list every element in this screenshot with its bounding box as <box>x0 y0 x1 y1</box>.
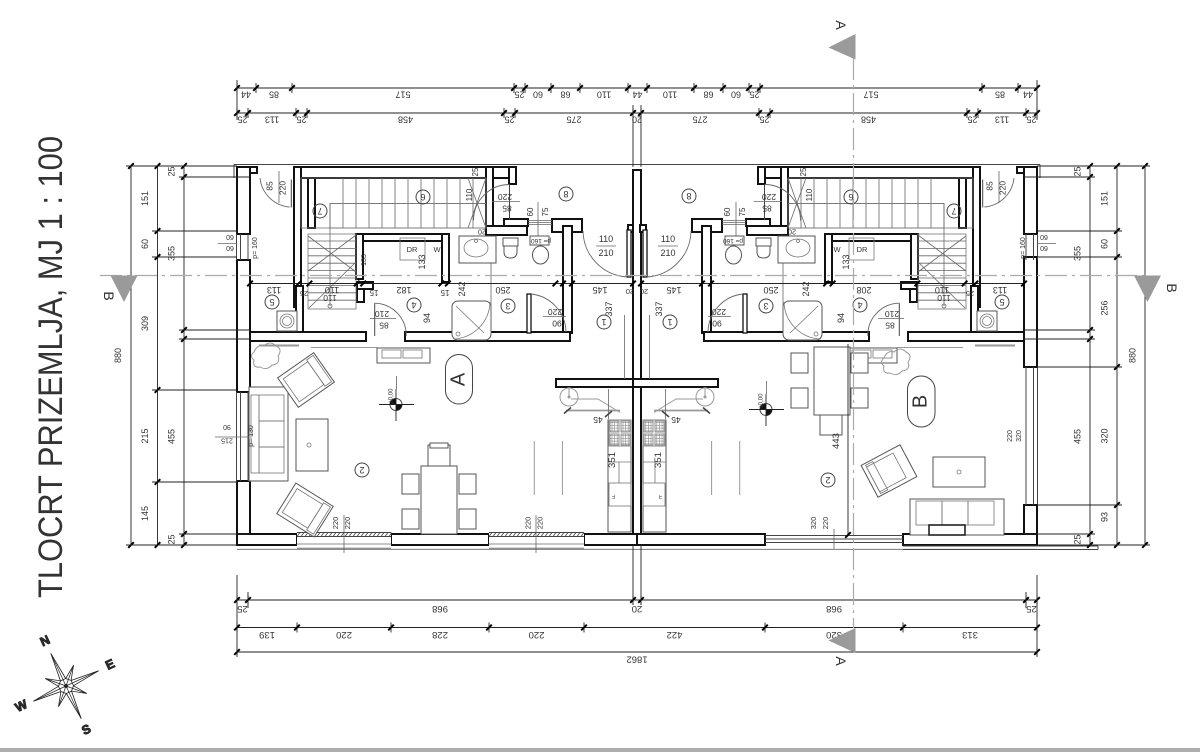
svg-text:90: 90 <box>223 423 231 430</box>
svg-text:220: 220 <box>336 629 352 640</box>
svg-text:210: 210 <box>660 248 675 258</box>
svg-text:25: 25 <box>1026 603 1037 614</box>
svg-text:85: 85 <box>269 90 279 100</box>
svg-text:25: 25 <box>1073 534 1083 544</box>
svg-text:25: 25 <box>799 167 808 176</box>
svg-text:215: 215 <box>140 428 150 443</box>
svg-text:210: 210 <box>885 309 899 319</box>
svg-text:320: 320 <box>809 517 818 530</box>
svg-text:p= 160: p= 160 <box>1020 237 1027 259</box>
svg-text:45: 45 <box>593 415 603 425</box>
svg-text:145: 145 <box>592 285 607 295</box>
svg-text:TLOCRT PRIZEMLJA, MJ 1 : 100: TLOCRT PRIZEMLJA, MJ 1 : 100 <box>32 136 70 598</box>
svg-text:44: 44 <box>632 90 642 100</box>
svg-text:220: 220 <box>331 517 340 530</box>
svg-text:220: 220 <box>1007 430 1014 442</box>
svg-text:320: 320 <box>1016 430 1023 442</box>
svg-text:93: 93 <box>1100 512 1110 522</box>
svg-text:250: 250 <box>763 285 778 295</box>
svg-text:B: B <box>909 395 931 408</box>
svg-text:250: 250 <box>495 285 510 295</box>
svg-text:85: 85 <box>995 90 1005 100</box>
svg-text:68: 68 <box>560 90 570 100</box>
svg-text:113: 113 <box>993 285 1007 295</box>
svg-text:517: 517 <box>863 90 878 100</box>
svg-text:44: 44 <box>241 90 251 100</box>
svg-text:7: 7 <box>951 206 956 216</box>
svg-text:151: 151 <box>140 191 150 206</box>
svg-text:337: 337 <box>604 301 614 316</box>
svg-text:242: 242 <box>457 281 467 296</box>
svg-text:85: 85 <box>265 181 275 191</box>
svg-text:6: 6 <box>848 192 853 202</box>
svg-text:44: 44 <box>1023 90 1033 100</box>
svg-text:60: 60 <box>526 207 535 216</box>
svg-text:220: 220 <box>498 192 512 202</box>
svg-text:113: 113 <box>267 285 281 295</box>
svg-text:351: 351 <box>607 452 618 468</box>
svg-text:2: 2 <box>359 465 364 475</box>
svg-text:1: 1 <box>601 317 606 327</box>
svg-text:458: 458 <box>861 115 876 125</box>
svg-text:275: 275 <box>692 115 707 125</box>
svg-text:220: 220 <box>712 307 726 317</box>
svg-text:B: B <box>1164 283 1180 292</box>
svg-text:60: 60 <box>723 207 732 216</box>
svg-text:210: 210 <box>375 309 389 319</box>
svg-text:60: 60 <box>1040 244 1048 251</box>
svg-text:220: 220 <box>343 517 352 530</box>
svg-text:220: 220 <box>548 307 562 317</box>
svg-text:355: 355 <box>167 246 177 261</box>
svg-text:455: 455 <box>1073 429 1083 444</box>
svg-text:85: 85 <box>379 321 389 331</box>
svg-text:3: 3 <box>505 301 510 311</box>
svg-text:60: 60 <box>533 90 543 100</box>
svg-text:75: 75 <box>541 207 550 216</box>
svg-text:±0,00: ±0,00 <box>389 388 395 404</box>
svg-text:443: 443 <box>831 433 842 449</box>
svg-text:75: 75 <box>738 207 747 216</box>
svg-text:DR: DR <box>407 245 418 254</box>
svg-text:110: 110 <box>661 234 675 244</box>
svg-text:94: 94 <box>836 313 846 323</box>
svg-text:60: 60 <box>226 233 234 240</box>
svg-text:145: 145 <box>666 285 681 295</box>
svg-text:309: 309 <box>140 316 150 331</box>
svg-text:3: 3 <box>763 301 768 311</box>
svg-text:A: A <box>833 656 849 666</box>
svg-text:90: 90 <box>552 319 562 329</box>
svg-text:313: 313 <box>962 629 978 640</box>
svg-text:W: W <box>433 245 441 254</box>
svg-text:133: 133 <box>417 254 427 269</box>
svg-text:151: 151 <box>1100 191 1110 206</box>
svg-text:20: 20 <box>632 115 642 125</box>
svg-text:4: 4 <box>857 300 862 310</box>
svg-text:60: 60 <box>1040 233 1048 240</box>
svg-text:15: 15 <box>369 288 378 297</box>
svg-text:25: 25 <box>514 90 524 100</box>
svg-text:68: 68 <box>703 90 713 100</box>
svg-text:220: 220 <box>536 517 545 530</box>
svg-text:5: 5 <box>269 297 274 307</box>
svg-text:145: 145 <box>140 506 150 521</box>
svg-text:B: B <box>101 291 117 300</box>
svg-text:1862: 1862 <box>626 654 647 665</box>
svg-text:8: 8 <box>686 191 691 201</box>
svg-text:W: W <box>833 245 841 254</box>
svg-text:25: 25 <box>759 115 769 125</box>
svg-text:15: 15 <box>440 288 449 297</box>
svg-text:p= 160: p= 160 <box>252 237 259 259</box>
svg-text:220: 220 <box>821 517 830 530</box>
svg-text:A: A <box>833 20 849 30</box>
svg-text:337: 337 <box>654 301 664 316</box>
svg-text:8: 8 <box>563 189 568 199</box>
svg-text:113: 113 <box>995 115 1009 125</box>
svg-text:25: 25 <box>167 166 177 176</box>
svg-text:85: 85 <box>885 321 895 331</box>
svg-text:458: 458 <box>398 115 413 125</box>
svg-text:220: 220 <box>529 629 545 640</box>
svg-text:94: 94 <box>422 313 432 323</box>
svg-text:25: 25 <box>1073 166 1083 176</box>
svg-text:110: 110 <box>937 293 951 303</box>
svg-text:85: 85 <box>502 204 512 214</box>
svg-text:220: 220 <box>762 192 776 202</box>
svg-text:1: 1 <box>667 317 672 327</box>
svg-text:45: 45 <box>671 415 681 425</box>
svg-text:60: 60 <box>226 244 234 251</box>
svg-text:256: 256 <box>1100 300 1110 315</box>
svg-text:113: 113 <box>265 115 279 125</box>
svg-text:60: 60 <box>731 90 741 100</box>
svg-text:p= 130: p= 130 <box>248 425 255 447</box>
svg-text:25: 25 <box>300 289 308 298</box>
svg-text:110: 110 <box>805 188 814 201</box>
svg-text:85: 85 <box>762 204 772 214</box>
svg-text:133: 133 <box>361 254 368 266</box>
svg-text:20: 20 <box>640 287 648 296</box>
svg-text:517: 517 <box>395 90 410 100</box>
svg-text:25: 25 <box>1026 115 1036 125</box>
svg-text:208: 208 <box>856 285 871 295</box>
svg-text:±0,00: ±0,00 <box>759 393 765 409</box>
svg-text:220: 220 <box>524 517 533 530</box>
svg-text:4: 4 <box>411 300 416 310</box>
svg-text:110: 110 <box>597 90 611 100</box>
svg-text:228: 228 <box>432 629 448 640</box>
svg-text:110: 110 <box>663 90 677 100</box>
svg-text:110: 110 <box>599 234 613 244</box>
svg-text:25: 25 <box>504 115 514 125</box>
svg-text:90: 90 <box>712 319 722 329</box>
svg-text:60: 60 <box>1100 239 1110 249</box>
svg-text:25: 25 <box>749 90 759 100</box>
svg-text:6: 6 <box>420 192 425 202</box>
svg-text:2: 2 <box>825 475 830 485</box>
svg-text:DR: DR <box>857 245 868 254</box>
svg-text:25: 25 <box>296 115 306 125</box>
svg-text:20: 20 <box>626 287 634 296</box>
svg-text:210: 210 <box>598 248 613 258</box>
svg-text:20: 20 <box>478 228 486 237</box>
svg-text:A: A <box>447 372 469 386</box>
svg-text:25: 25 <box>966 289 974 298</box>
svg-text:p= 160: p= 160 <box>531 237 551 244</box>
svg-text:133: 133 <box>841 254 851 269</box>
svg-text:110: 110 <box>323 293 337 303</box>
svg-text:25: 25 <box>471 167 480 176</box>
svg-text:25: 25 <box>237 115 247 125</box>
svg-text:242: 242 <box>801 281 811 296</box>
svg-text:422: 422 <box>667 629 683 640</box>
svg-text:351: 351 <box>653 452 664 468</box>
svg-text:968: 968 <box>432 603 448 614</box>
svg-text:5: 5 <box>999 297 1004 307</box>
svg-text:215: 215 <box>221 437 233 444</box>
svg-text:25: 25 <box>167 534 177 544</box>
svg-text:355: 355 <box>1073 246 1083 261</box>
svg-text:25: 25 <box>237 603 248 614</box>
svg-text:275: 275 <box>566 115 581 125</box>
svg-text:320: 320 <box>1100 428 1110 443</box>
svg-text:25: 25 <box>967 115 977 125</box>
svg-text:968: 968 <box>826 603 842 614</box>
svg-text:20: 20 <box>788 228 796 237</box>
svg-text:60: 60 <box>140 239 150 249</box>
svg-text:139: 139 <box>259 629 275 640</box>
svg-text:455: 455 <box>167 429 177 444</box>
svg-text:880: 880 <box>113 348 123 363</box>
svg-text:85: 85 <box>985 181 995 191</box>
svg-text:7: 7 <box>317 206 322 216</box>
svg-text:182: 182 <box>396 285 411 295</box>
svg-text:880: 880 <box>1128 348 1138 363</box>
svg-text:p= 160: p= 160 <box>723 237 743 244</box>
svg-text:110: 110 <box>465 188 474 201</box>
